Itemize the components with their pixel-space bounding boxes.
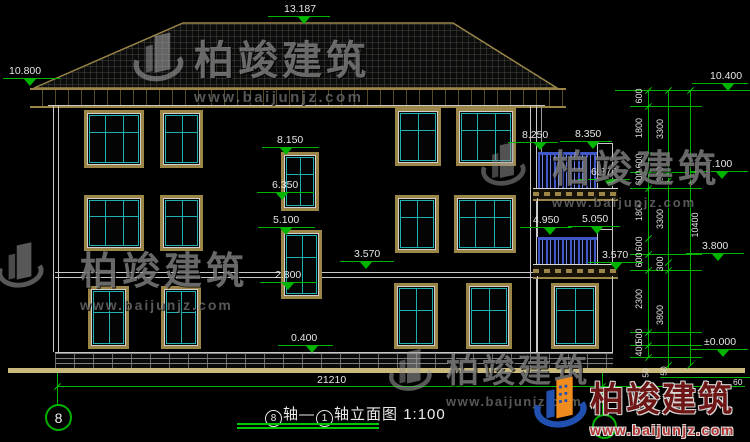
level-triangle-icon <box>276 193 288 200</box>
wall-top-line <box>48 105 545 106</box>
level-triangle-icon <box>282 283 294 290</box>
dim-value: 300 <box>655 157 665 191</box>
level-triangle-icon <box>360 262 372 269</box>
dim-value: 2300 <box>634 282 644 316</box>
elevation-value: 10.400 <box>710 71 748 82</box>
window <box>160 195 203 251</box>
dim-value: 3800 <box>655 298 665 332</box>
level-triangle-icon <box>591 227 603 234</box>
elevation-marker: 6.350 <box>257 180 314 200</box>
elevation-value: 2.800 <box>275 270 317 281</box>
total-width-dim: 21210 <box>317 374 346 386</box>
level-triangle-icon <box>534 143 546 150</box>
window <box>454 195 516 253</box>
window <box>160 110 203 168</box>
elevation-marker: 10.800 <box>3 66 60 86</box>
dim-value: 300 <box>655 247 665 281</box>
level-triangle-icon <box>280 228 292 235</box>
window <box>466 283 512 349</box>
window <box>395 108 441 166</box>
elevation-value: 13.187 <box>284 4 330 15</box>
elevation-marker: 3.570 <box>340 249 394 269</box>
window <box>395 195 439 253</box>
dim-value: 50 <box>641 368 651 377</box>
level-triangle-icon <box>587 142 599 149</box>
elevation-value: 7.100 <box>706 159 748 170</box>
elevation-value: 6.870 <box>591 167 630 178</box>
dim-value: 1800 <box>634 111 644 145</box>
elevation-value: 8.250 <box>522 130 558 141</box>
left-corner-pilaster <box>53 106 59 352</box>
title-underline <box>237 423 379 425</box>
dim-value: 10400 <box>690 208 700 242</box>
elevation-value: 6.350 <box>272 180 314 191</box>
level-triangle-icon <box>717 350 729 357</box>
elevation-marker: 8.350 <box>560 129 612 149</box>
level-triangle-icon <box>604 180 616 187</box>
elevation-value: 0.400 <box>291 333 333 344</box>
elevation-marker: 5.050 <box>568 214 620 234</box>
elevation-value: 3.570 <box>354 249 394 260</box>
window <box>84 110 144 168</box>
window <box>394 283 438 349</box>
title-underline <box>237 427 379 429</box>
level-triangle-icon <box>24 79 36 86</box>
axis-leader-line <box>602 373 603 415</box>
dim-value: 3300 <box>655 202 665 236</box>
axis-number: 8 <box>55 410 63 426</box>
roof-outline <box>34 23 557 88</box>
title-dash: — <box>299 406 315 423</box>
elevation-marker: 7.100 <box>690 159 748 179</box>
elevation-marker: 3.800 <box>686 241 744 261</box>
window <box>456 108 516 166</box>
elevation-marker: 6.870 <box>578 167 630 187</box>
dim-chain-line <box>648 90 649 357</box>
ground-line <box>8 368 745 373</box>
title-scale: 1:100 <box>403 406 446 423</box>
bottom-dim-line <box>57 386 745 387</box>
elevation-marker: 5.100 <box>258 215 315 235</box>
level-triangle-icon <box>716 172 728 179</box>
elevation-marker: ±0.000 <box>690 337 748 357</box>
elevation-marker: 10.400 <box>692 71 748 91</box>
elevation-value: 5.100 <box>273 215 315 226</box>
level-triangle-icon <box>544 228 556 235</box>
title-text: 轴 <box>283 406 299 423</box>
plinth-brick-band <box>55 352 613 369</box>
elevation-value: 8.150 <box>277 135 319 146</box>
dim-value: 400 <box>634 332 644 366</box>
axis-bubble-right <box>592 414 617 439</box>
axis-bubble-left: 8 <box>45 404 72 431</box>
window <box>88 286 129 349</box>
level-triangle-icon <box>298 17 310 24</box>
elevation-marker: 8.250 <box>508 130 558 150</box>
level-triangle-icon <box>306 346 318 353</box>
elevation-value: 4.950 <box>533 215 572 226</box>
title-text: 轴立面图 <box>334 406 398 423</box>
elevation-marker: 4.950 <box>520 215 572 235</box>
level-triangle-icon <box>610 263 622 270</box>
elevation-value: 3.800 <box>702 241 744 252</box>
elevation-value: ±0.000 <box>704 337 748 348</box>
elevation-marker: 13.187 <box>268 4 330 24</box>
cad-elevation-drawing: 13.187 10.800 10.400 7.100 3.800 ±0.000 … <box>0 0 750 442</box>
window <box>161 286 201 349</box>
dim-value: 600 <box>634 243 644 277</box>
dim-value: 3300 <box>655 112 665 146</box>
elevation-marker: 2.800 <box>260 270 317 290</box>
level-triangle-icon <box>280 148 292 155</box>
elevation-value: 10.800 <box>9 66 60 77</box>
dim-value: 50 <box>659 366 669 375</box>
elevation-value: 8.350 <box>575 129 612 140</box>
level-triangle-icon <box>712 254 724 261</box>
elevation-marker: 0.400 <box>278 333 333 353</box>
dim-value: 600 <box>634 79 644 113</box>
dim-value: 600 <box>634 161 644 195</box>
wing-wall <box>537 276 613 352</box>
elevation-marker: 8.150 <box>262 135 319 155</box>
axis-leader-line <box>57 373 58 406</box>
elevation-value: 5.050 <box>582 214 620 225</box>
window <box>84 195 144 251</box>
dim-chain-line <box>668 90 669 368</box>
dim-value: 1800 <box>634 194 644 228</box>
